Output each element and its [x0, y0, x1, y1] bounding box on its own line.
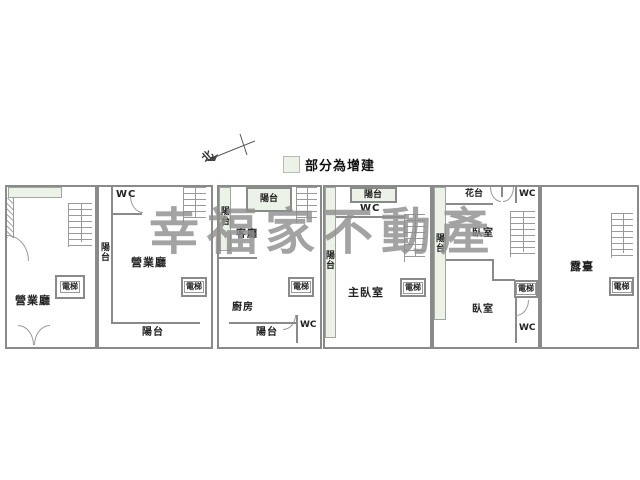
floorplan-canvas: 部分為增建 北 電梯 營業廳 陽台 WC 營業廳 電梯	[0, 0, 640, 480]
balcony-top-label: 陽台	[364, 191, 382, 200]
north-label: 北	[198, 147, 216, 165]
elevator-box: 電梯	[288, 277, 314, 297]
wc-bottom-label: WC	[519, 324, 536, 333]
room-label-business-hall: 營業廳	[15, 295, 51, 306]
stairs	[611, 213, 633, 258]
elevator-box: 電梯	[181, 277, 207, 297]
balcony-wall	[111, 322, 200, 324]
wc-wall	[515, 187, 517, 203]
elevator-box: 電梯	[514, 280, 538, 298]
watermark: 幸福家不動產	[149, 207, 497, 257]
legend: 部分為增建	[283, 155, 375, 174]
elevator-label: 電梯	[184, 281, 204, 293]
elevator-box: 電梯	[609, 277, 634, 296]
door-arc	[18, 325, 34, 345]
wall-hatch	[7, 198, 14, 238]
elevator-label: 電梯	[612, 281, 632, 293]
legend-label: 部分為增建	[305, 155, 375, 174]
unit-1: 電梯 營業廳	[5, 185, 97, 349]
wc-wall	[113, 213, 142, 215]
room-label-terrace: 露臺	[570, 261, 594, 272]
balcony-bottom-label: 陽台	[142, 328, 164, 338]
room-label-kitchen: 廚房	[232, 303, 254, 313]
elevator-box: 電梯	[400, 278, 426, 297]
door-arc	[516, 300, 529, 316]
flower-bed-label: 花台	[465, 190, 483, 199]
corridor-wall	[111, 187, 113, 322]
door-arc	[34, 325, 50, 345]
elevator-label: 電梯	[291, 281, 311, 293]
balcony-wall	[229, 322, 297, 324]
door-arc	[503, 187, 514, 202]
room-label-bedroom-lower: 臥室	[472, 305, 494, 315]
elevator-label: 電梯	[60, 281, 80, 293]
legend-addition-swatch	[283, 156, 300, 173]
mid-wall	[492, 279, 515, 281]
unit-6: 露臺 電梯	[540, 185, 639, 349]
balcony-left-label: 陽台	[100, 243, 111, 264]
door-arc	[490, 187, 501, 202]
door-arc	[130, 196, 143, 213]
addition-area	[8, 187, 62, 198]
wc-wall	[296, 315, 298, 343]
elevator-label: 電梯	[516, 283, 536, 295]
wc-top-label: WC	[519, 190, 536, 199]
stairs	[68, 203, 92, 247]
north-arrow: 北	[198, 131, 260, 177]
room-label-master-bedroom: 主臥室	[348, 287, 384, 298]
door-arc	[7, 235, 29, 261]
balcony-bottom-label: 陽台	[256, 328, 278, 338]
wc-label: WC	[300, 321, 317, 330]
elevator-box: 電梯	[55, 275, 85, 299]
stairs	[510, 211, 535, 257]
elevator-label: 電梯	[403, 282, 423, 294]
mid-wall	[492, 259, 494, 280]
